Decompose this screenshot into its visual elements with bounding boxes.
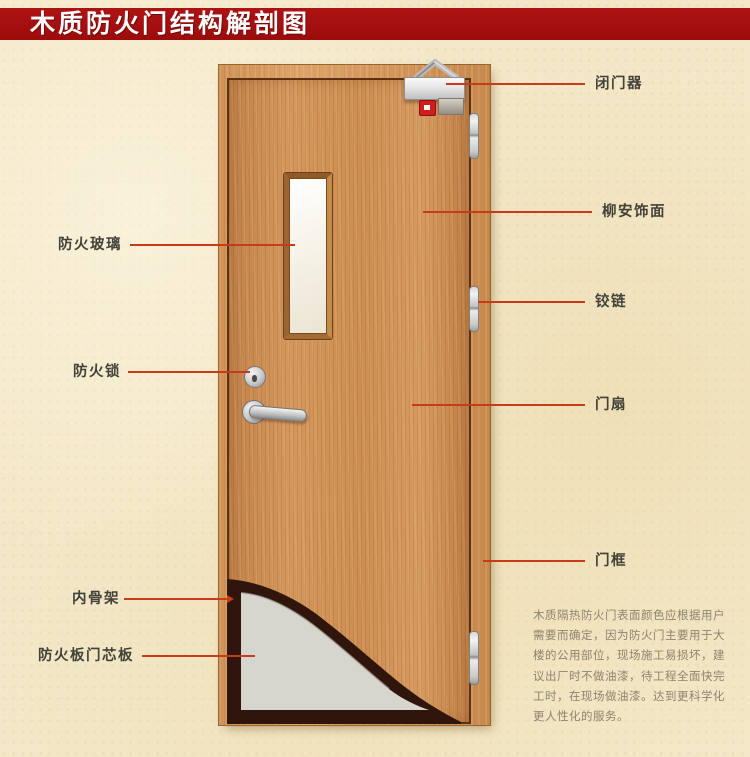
- description-line: 更人性化的服务。: [533, 707, 715, 727]
- hinge-top: [469, 113, 479, 159]
- label-veneer: 柳安饰面: [602, 203, 666, 221]
- callout-line-core-panel: [142, 655, 255, 657]
- label-door-frame: 门框: [595, 552, 627, 570]
- page-title: 木质防火门结构解剖图: [0, 8, 750, 41]
- fire-lock-cylinder: [244, 366, 266, 388]
- description-line: 需要而确定，因为防火门主要用于大: [533, 626, 715, 646]
- description-line: 工时，在现场做油漆。达到更科学化: [533, 687, 715, 707]
- title-banner: 木质防火门结构解剖图: [0, 8, 750, 40]
- label-inner-frame: 内骨架: [72, 590, 120, 608]
- arrowhead-icon: [227, 595, 234, 603]
- exit-sign-inner: [424, 105, 430, 110]
- cutaway-section: [227, 579, 461, 724]
- keyhole-icon: [252, 375, 257, 382]
- description-paragraph: 木质隔热防火门表面颜色应根据用户 需要而确定，因为防火门主要用于大 楼的公用部位…: [533, 606, 715, 727]
- label-fire-lock: 防火锁: [73, 363, 121, 381]
- callout-line-door-closer: [446, 83, 585, 85]
- label-door-closer: 闭门器: [595, 75, 643, 93]
- door-closer: [404, 77, 465, 100]
- callout-line-door-leaf: [412, 404, 585, 406]
- callout-line-door-frame: [483, 560, 585, 562]
- page-background: 木质防火门结构解剖图: [0, 0, 750, 757]
- description-line: 议出厂时不做油漆，待工程全面快完: [533, 667, 715, 687]
- callout-line-inner-frame: [124, 598, 228, 600]
- callout-line-veneer: [423, 211, 592, 213]
- hinge-middle: [469, 286, 479, 332]
- label-core-panel: 防火板门芯板: [38, 647, 134, 665]
- fire-door-illustration: [218, 64, 491, 726]
- alarm-box: [438, 98, 464, 115]
- fire-glass-window: [284, 173, 332, 339]
- label-hinge: 铰链: [595, 293, 627, 311]
- callout-line-fire-glass: [130, 244, 295, 246]
- callout-line-fire-lock: [128, 371, 250, 373]
- exit-sign-icon: [419, 100, 436, 116]
- callout-line-hinge: [478, 301, 585, 303]
- description-line: 木质隔热防火门表面颜色应根据用户: [533, 606, 715, 626]
- hinge-bottom: [469, 631, 479, 685]
- label-fire-glass: 防火玻璃: [58, 236, 122, 254]
- description-line: 楼的公用部位，现场施工易损坏，建: [533, 646, 715, 666]
- label-door-leaf: 门扇: [595, 396, 627, 414]
